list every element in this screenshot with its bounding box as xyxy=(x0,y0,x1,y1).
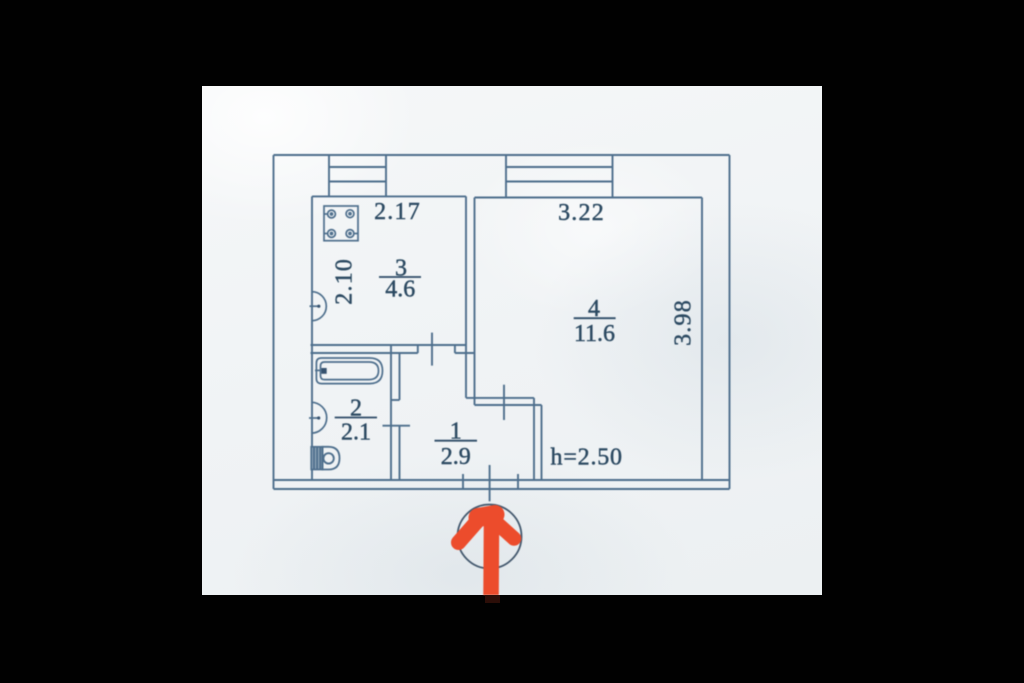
svg-text:2.1: 2.1 xyxy=(341,419,371,445)
svg-text:h=2.50: h=2.50 xyxy=(551,445,623,471)
svg-text:11.6: 11.6 xyxy=(574,321,615,347)
svg-text:2.9: 2.9 xyxy=(441,444,471,470)
svg-text:2.10: 2.10 xyxy=(332,258,358,305)
svg-text:3.98: 3.98 xyxy=(671,299,697,346)
svg-text:3.22: 3.22 xyxy=(558,200,605,226)
svg-text:4.6: 4.6 xyxy=(385,276,415,302)
svg-text:2.17: 2.17 xyxy=(374,199,421,225)
